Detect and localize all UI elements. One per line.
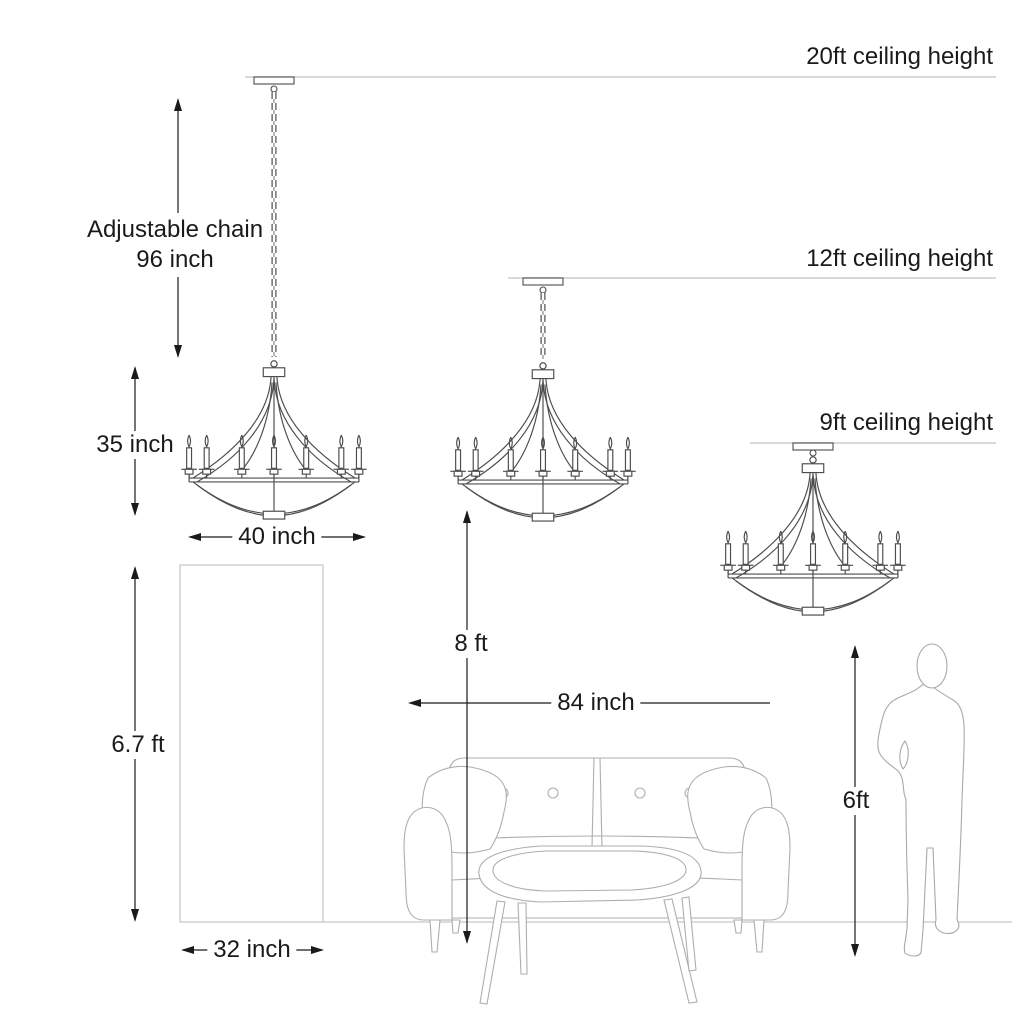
label-chandelier-height: 35 inch [90,431,179,459]
chandelier-9ft [720,443,905,615]
label-sofa-width: 84 inch [551,689,640,717]
chain [810,450,816,456]
coffee-table-illustration [479,846,701,1004]
label-chain-title: Adjustable chain [87,215,263,245]
person-silhouette [878,644,964,956]
chandelier-12ft [450,278,635,521]
label-20ft-ceiling: 20ft ceiling height [804,43,995,71]
chandelier-size-guide: 20ft ceiling height 12ft ceiling height … [0,0,1024,1024]
label-9ft-ceiling: 9ft ceiling height [818,409,995,437]
dimension-diagram [0,0,1024,1024]
label-person-height: 6ft [837,787,876,815]
label-door-height: 6.7 ft [105,731,170,759]
label-chandelier-width: 40 inch [232,523,321,551]
label-adjustable-chain: Adjustable chain 96 inch [81,213,269,277]
label-12ft-ceiling: 12ft ceiling height [804,245,995,273]
door-outline [180,565,323,922]
label-door-width: 32 inch [207,936,296,964]
label-chain-value: 96 inch [87,245,263,275]
chandelier-20ft [181,77,366,519]
label-hanging-clearance: 8 ft [448,630,493,658]
